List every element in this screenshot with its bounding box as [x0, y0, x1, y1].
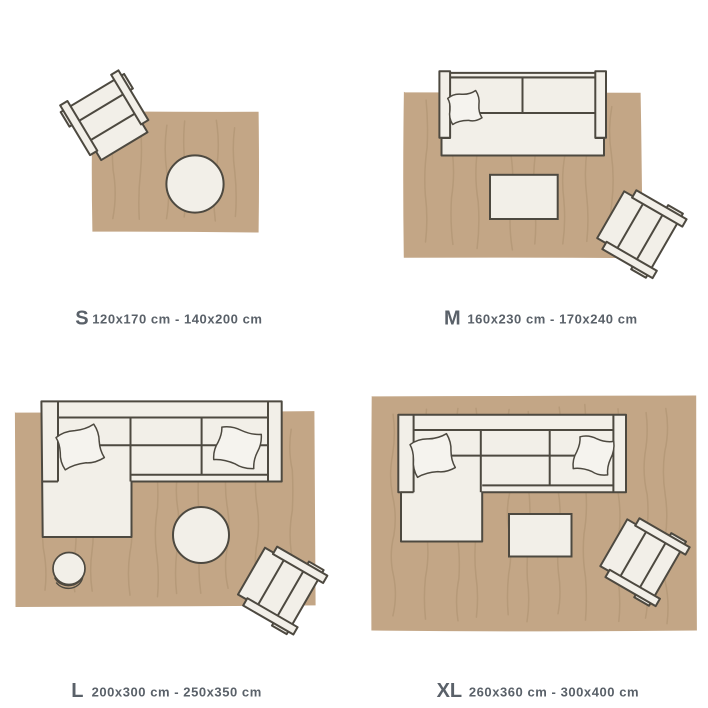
svg-text:L: L: [71, 680, 83, 702]
svg-text:160x230 cm - 170x240 cm: 160x230 cm - 170x240 cm: [467, 312, 637, 327]
svg-text:XL: XL: [437, 680, 463, 702]
svg-text:M: M: [444, 308, 461, 330]
svg-text:260x360 cm - 300x400 cm: 260x360 cm - 300x400 cm: [469, 685, 639, 700]
svg-text:120x170 cm - 140x200 cm: 120x170 cm - 140x200 cm: [92, 312, 262, 327]
svg-text:200x300 cm - 250x350 cm: 200x300 cm - 250x350 cm: [92, 685, 262, 700]
svg-text:S: S: [75, 308, 88, 330]
